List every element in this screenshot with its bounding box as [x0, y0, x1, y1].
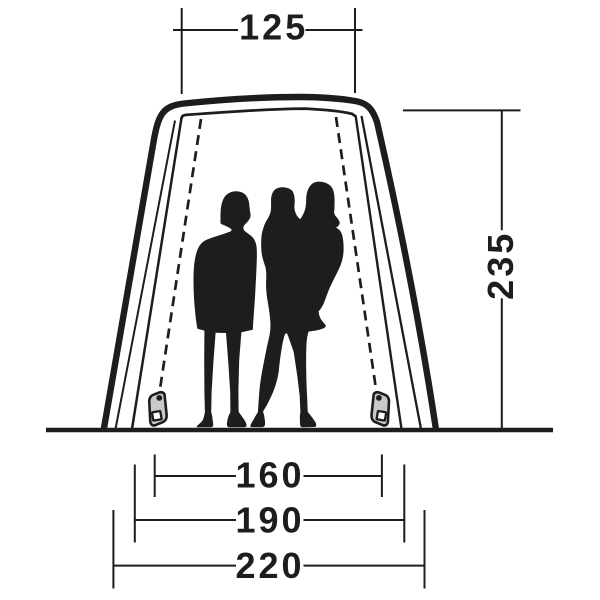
svg-text:125: 125 [239, 6, 308, 47]
svg-text:220: 220 [235, 545, 304, 586]
svg-text:160: 160 [235, 454, 304, 495]
svg-text:190: 190 [235, 500, 304, 541]
svg-text:235: 235 [480, 231, 521, 300]
